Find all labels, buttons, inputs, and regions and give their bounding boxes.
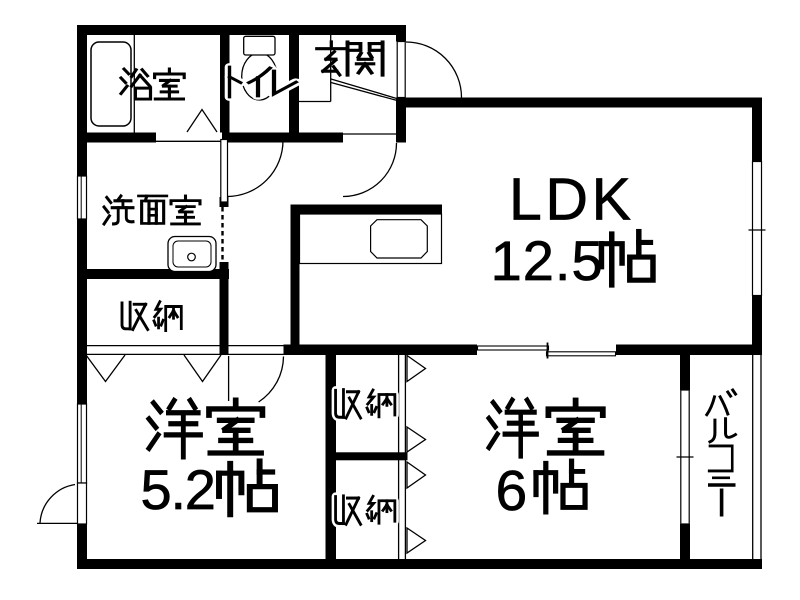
svg-text:6: 6 [496, 459, 528, 523]
svg-text:LDK: LDK [509, 167, 635, 233]
svg-text:5.2: 5.2 [141, 458, 215, 521]
svg-text:12.5: 12.5 [491, 229, 604, 292]
